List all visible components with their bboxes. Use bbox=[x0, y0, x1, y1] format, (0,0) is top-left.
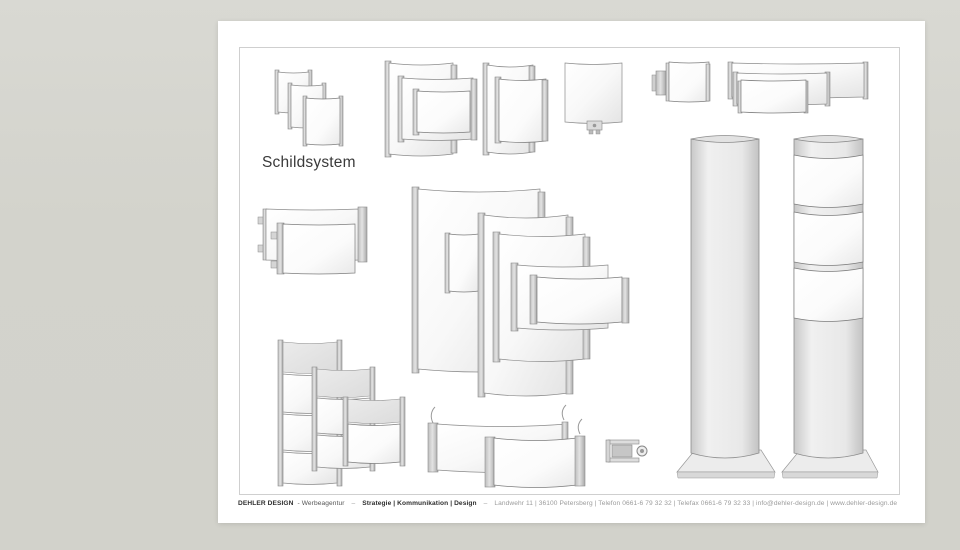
footer-address: Landwehr 11 | 36100 Petersberg | Telefon… bbox=[494, 500, 897, 507]
desk-signs bbox=[428, 405, 585, 488]
footer-brand-suffix: - Werbeagentur bbox=[297, 500, 344, 507]
footer-tagline: Strategie | Kommunikation | Design bbox=[362, 500, 476, 507]
pylon-column-plain bbox=[677, 136, 775, 479]
wall-sign-with-clips bbox=[258, 207, 367, 274]
illustration-canvas bbox=[218, 21, 925, 523]
double-wall-sign bbox=[483, 63, 548, 155]
nested-wall-signs bbox=[385, 61, 477, 157]
catalog-page: Schildsystem DEHLER DESIGN - Werbeagentu… bbox=[218, 21, 925, 523]
door-plates-set bbox=[275, 70, 343, 146]
profile-cross-section bbox=[606, 440, 647, 462]
footer-brand: DEHLER DESIGN bbox=[238, 500, 294, 507]
small-sign-with-bracket bbox=[652, 62, 710, 102]
door-sign-cluster bbox=[412, 187, 629, 397]
single-panel-with-connector bbox=[565, 63, 622, 134]
directory-towers bbox=[278, 340, 405, 486]
page-title: Schildsystem bbox=[262, 154, 356, 172]
wide-layered-panels bbox=[728, 62, 868, 113]
footer-separator: – bbox=[352, 500, 356, 507]
pylon-column-banded bbox=[782, 136, 878, 479]
footer: DEHLER DESIGN - Werbeagentur – Strategie… bbox=[238, 500, 918, 507]
footer-separator: – bbox=[484, 500, 488, 507]
